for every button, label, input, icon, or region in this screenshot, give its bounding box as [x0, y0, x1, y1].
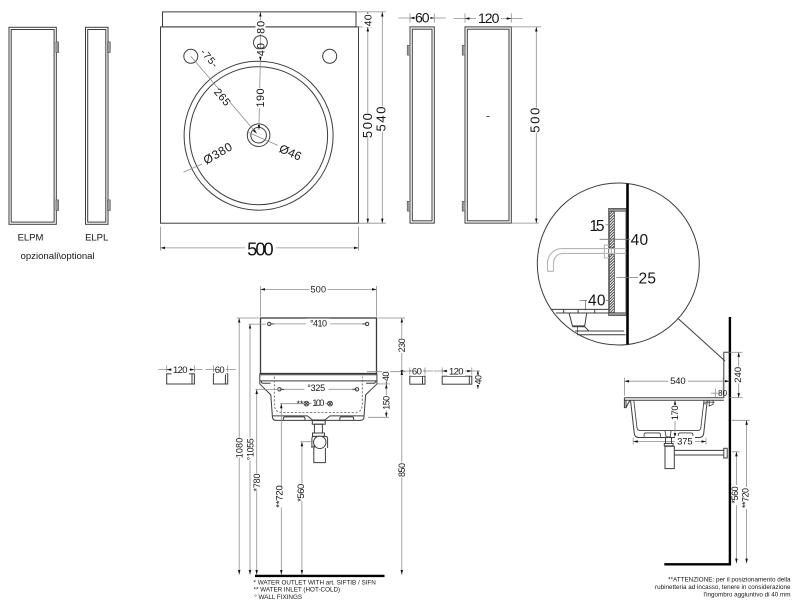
svg-text:40: 40 [588, 293, 606, 310]
svg-text:15: 15 [590, 218, 605, 235]
svg-text:**ATTENZIONE: per il posiziona: **ATTENZIONE: per il posizionamento dell… [668, 577, 791, 584]
svg-text:* WATER OUTLET WITH art. SIFT: * WATER OUTLET WITH art. SIFTIB / SIFN [254, 579, 377, 586]
svg-text:°325: °325 [307, 383, 325, 393]
svg-text:40: 40 [473, 375, 483, 385]
svg-text:100: 100 [312, 398, 324, 408]
svg-text:40: 40 [631, 232, 649, 249]
svg-text:540: 540 [670, 376, 686, 387]
svg-text:120: 120 [173, 365, 188, 376]
svg-text:850: 850 [397, 463, 407, 477]
svg-text:*560: *560 [730, 486, 740, 503]
svg-text:ELPM: ELPM [18, 232, 44, 243]
svg-text:230: 230 [397, 338, 407, 352]
svg-text:40: 40 [363, 14, 375, 26]
svg-text:190: 190 [255, 89, 267, 108]
svg-text:rubinetteria ad incasso, tener: rubinetteria ad incasso, tenere in consi… [655, 584, 791, 591]
svg-text:120: 120 [449, 366, 464, 377]
svg-text:*780: *780 [252, 474, 262, 492]
svg-text:60: 60 [215, 365, 225, 376]
svg-text:**720: **720 [275, 485, 286, 508]
svg-text:° WALL FIXINGS: ° WALL FIXINGS [254, 593, 302, 600]
svg-text:375: 375 [677, 437, 693, 448]
svg-text:l'ingombro aggiuntivo di 40 mm: l'ingombro aggiuntivo di 40 mm [704, 592, 791, 599]
svg-text:500: 500 [527, 108, 542, 133]
svg-text:240: 240 [733, 367, 744, 383]
svg-text:°410: °410 [310, 319, 327, 329]
svg-text:500: 500 [247, 239, 274, 259]
svg-text:ELPL: ELPL [85, 232, 108, 243]
svg-text:25: 25 [639, 270, 657, 287]
svg-text:170: 170 [670, 405, 681, 420]
svg-text:*560: *560 [296, 484, 307, 502]
svg-text:120: 120 [478, 10, 500, 26]
svg-text:40: 40 [256, 43, 268, 56]
svg-text:60: 60 [415, 10, 430, 26]
svg-text:80: 80 [718, 389, 728, 398]
svg-text:opzionali\optional: opzionali\optional [21, 251, 95, 262]
svg-text:°1055: °1055 [245, 438, 255, 460]
svg-text:150: 150 [382, 396, 392, 410]
svg-text:1080: 1080 [235, 438, 245, 459]
svg-text:500: 500 [311, 284, 327, 294]
svg-text:60: 60 [412, 366, 422, 377]
svg-text:80: 80 [256, 21, 268, 34]
svg-text:*: * [312, 444, 316, 454]
svg-text:**720: **720 [741, 488, 751, 508]
svg-text:**: ** [296, 399, 304, 409]
svg-text:40: 40 [381, 372, 391, 382]
svg-text:** WATER INLET (HOT-COLD): ** WATER INLET (HOT-COLD) [254, 587, 341, 594]
svg-text:540: 540 [373, 107, 388, 132]
